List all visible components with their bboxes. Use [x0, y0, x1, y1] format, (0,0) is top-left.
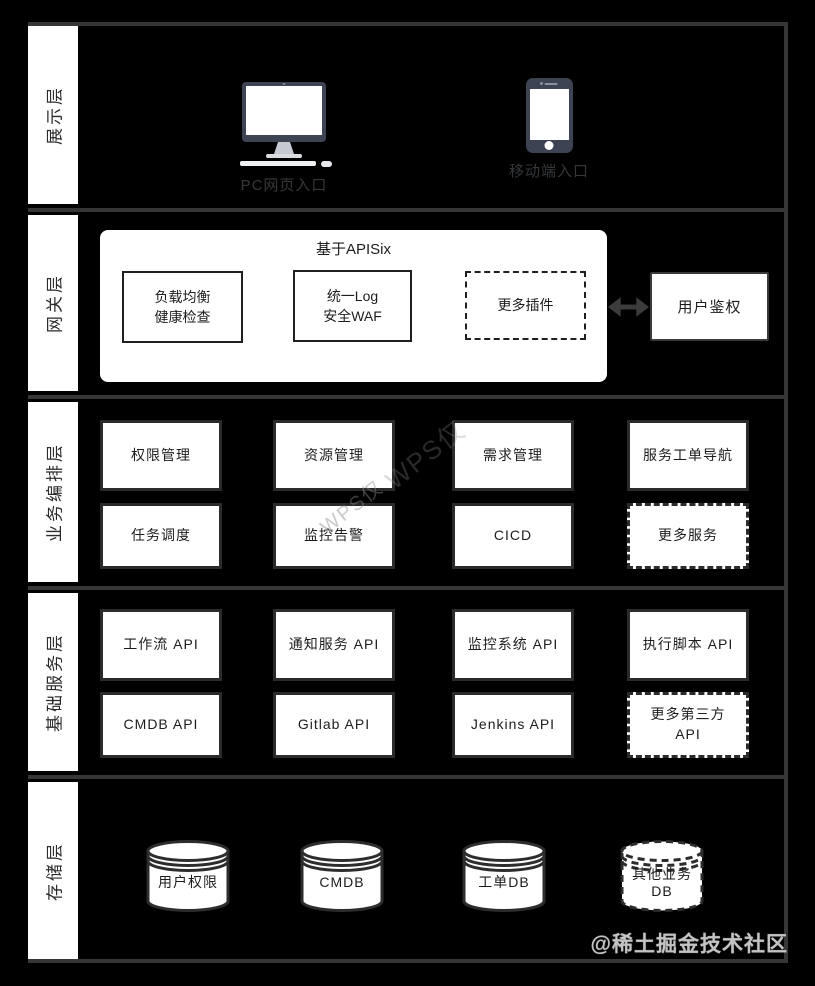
box-permission-mgmt: 权限管理: [100, 420, 222, 491]
box-cmdb-api: CMDB API: [100, 692, 222, 758]
box-workflow-api: 工作流 API: [100, 609, 222, 681]
presentation-content: PC网页入口 移动端入口: [78, 26, 784, 208]
monitor-stand: [274, 142, 294, 154]
box-more-plugins: 更多插件: [465, 271, 586, 340]
box-gitlab-api: Gitlab API: [273, 692, 395, 758]
layer-label-text: 展示层: [41, 85, 66, 145]
box-monitor-alert: 监控告警: [273, 503, 395, 569]
mobile-entry-label: 移动端入口: [509, 160, 589, 181]
layer-label-text: 基础服务层: [41, 632, 66, 732]
double-arrow-icon: [607, 295, 650, 319]
phone-speaker: [545, 83, 558, 85]
phone-screen: [530, 89, 569, 140]
gateway-content: 基于APISix 负载均衡 健康检查 统一Log 安全WAF 更多插件 用户鉴权: [78, 212, 784, 395]
box-task-scheduling: 任务调度: [100, 503, 222, 569]
box-resource-mgmt: 资源管理: [273, 420, 395, 491]
db-other-business: 其他业务 DB: [619, 840, 705, 912]
db-label: 工单DB: [461, 874, 547, 891]
phone-camera-dot: [540, 82, 543, 85]
layer-base-services: 基础服务层 工作流 API 通知服务 API 监控系统 API 执行脚本 API…: [28, 590, 784, 779]
layer-label-text: 网关层: [41, 273, 66, 333]
monitor-screen: [246, 86, 322, 135]
box-more-third-party-api: 更多第三方 API: [627, 692, 749, 758]
layer-label-storage: 存储层: [28, 782, 78, 959]
db-label: 其他业务 DB: [619, 866, 705, 900]
box-user-auth: 用户鉴权: [650, 272, 769, 341]
box-cicd: CICD: [452, 503, 574, 569]
layer-label-orchestration: 业务编排层: [28, 402, 78, 582]
pc-monitor-icon: [234, 82, 334, 167]
layer-label-gateway: 网关层: [28, 215, 78, 391]
box-load-balance-health-check: 负载均衡 健康检查: [122, 271, 243, 343]
db-cmdb: CMDB: [299, 840, 385, 912]
box-monitor-system-api: 监控系统 API: [452, 609, 574, 681]
layer-orchestration: 业务编排层 权限管理 资源管理 需求管理 服务工单导航 任务调度 监控告警 CI…: [28, 399, 784, 590]
apisix-container: 基于APISix 负载均衡 健康检查 统一Log 安全WAF 更多插件: [100, 230, 607, 382]
pc-entry-label: PC网页入口: [241, 174, 328, 195]
mouse-icon: [321, 161, 332, 167]
base-services-content: 工作流 API 通知服务 API 监控系统 API 执行脚本 API CMDB …: [78, 590, 784, 775]
orchestration-content: 权限管理 资源管理 需求管理 服务工单导航 任务调度 监控告警 CICD 更多服…: [78, 399, 784, 586]
db-user-permission: 用户权限: [145, 840, 231, 912]
monitor-frame: [242, 82, 326, 142]
layer-presentation: 展示层 PC网页入口: [28, 26, 784, 212]
db-label: 用户权限: [145, 874, 231, 891]
box-demand-mgmt: 需求管理: [452, 420, 574, 491]
box-more-services: 更多服务: [627, 503, 749, 569]
layer-label-base-services: 基础服务层: [28, 593, 78, 771]
apisix-title: 基于APISix: [100, 238, 607, 259]
pc-entry: PC网页入口: [209, 82, 359, 195]
keyboard-icon: [240, 161, 316, 166]
box-jenkins-api: Jenkins API: [452, 692, 574, 758]
db-ticket: 工单DB: [461, 840, 547, 912]
box-service-ticket-nav: 服务工单导航: [627, 420, 749, 491]
keyboard-mouse-row: [234, 161, 334, 167]
juejin-community-watermark: @稀土掘金技术社区: [591, 928, 788, 958]
layer-label-text: 存储层: [41, 841, 66, 901]
architecture-diagram: 展示层 PC网页入口: [0, 0, 815, 986]
mobile-entry: 移动端入口: [474, 78, 624, 181]
box-notify-service-api: 通知服务 API: [273, 609, 395, 681]
monitor-base: [266, 154, 302, 158]
layer-label-text: 业务编排层: [41, 442, 66, 542]
layer-label-presentation: 展示层: [28, 26, 78, 204]
mobile-phone-icon: [526, 78, 573, 153]
layer-gateway: 网关层 基于APISix 负载均衡 健康检查 统一Log 安全WAF 更多插件 …: [28, 212, 784, 399]
box-script-exec-api: 执行脚本 API: [627, 609, 749, 681]
phone-home-button: [545, 141, 554, 150]
box-unified-log-waf: 统一Log 安全WAF: [293, 270, 412, 342]
db-label: CMDB: [299, 874, 385, 891]
diagram-frame: 展示层 PC网页入口: [28, 22, 788, 963]
